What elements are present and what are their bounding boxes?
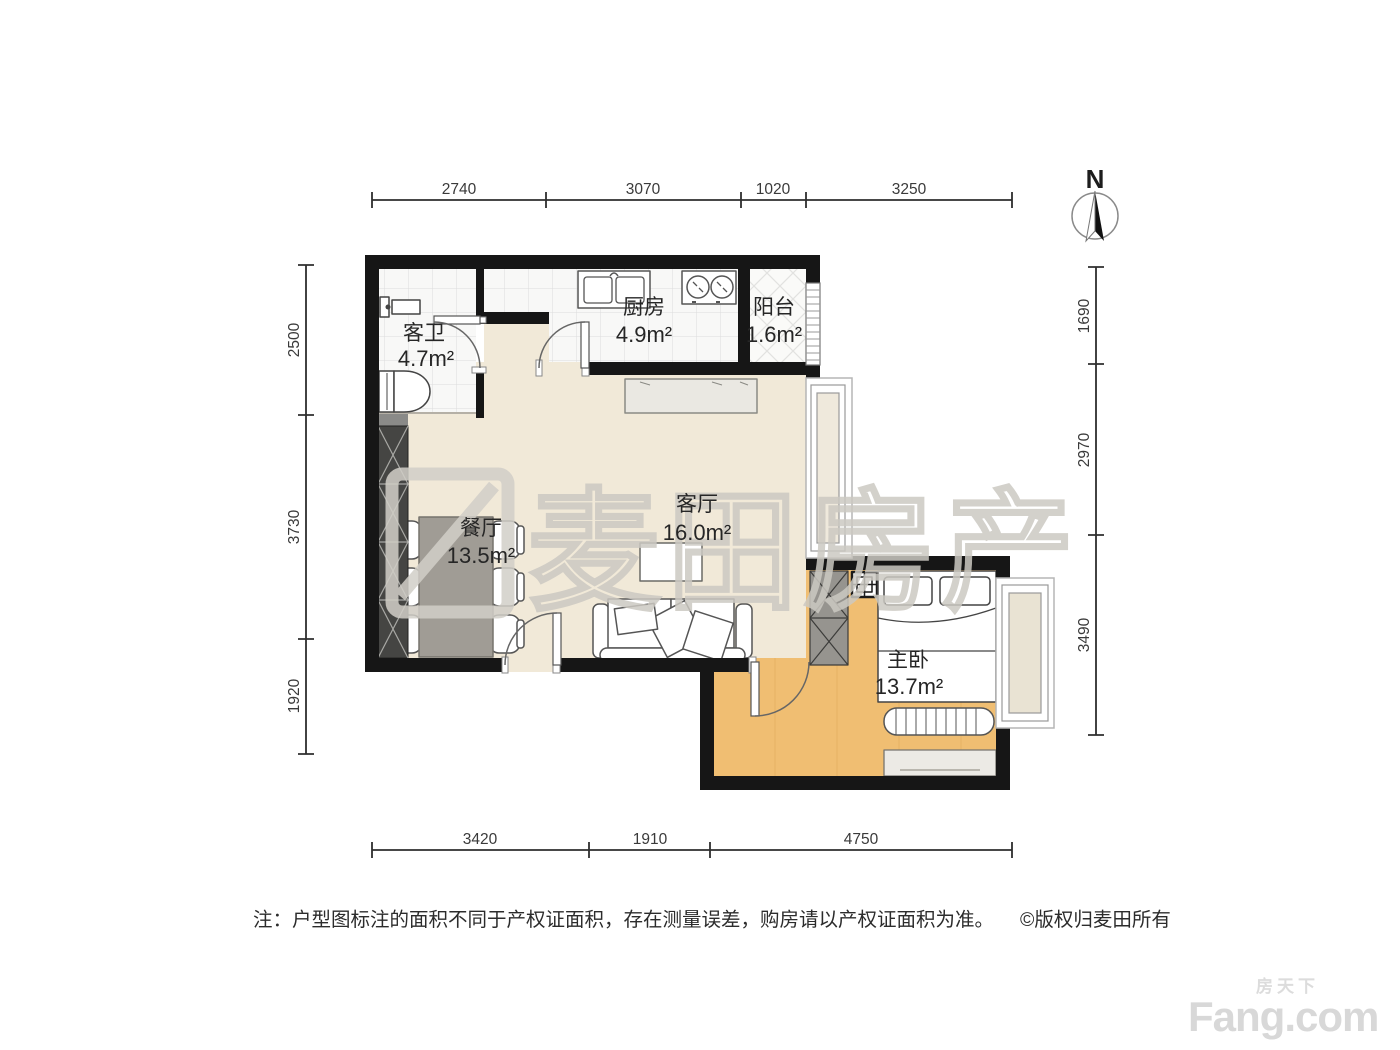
balcony-window (806, 283, 820, 365)
svg-text:1920: 1920 (286, 678, 303, 713)
compass-icon: N (1072, 164, 1118, 241)
bed-bench (884, 708, 994, 735)
footer-note: 注：户型图标注的面积不同于产权证面积，存在测量误差，购房请以产权证面积为准。©版… (253, 903, 1171, 932)
sideboard (625, 379, 757, 413)
svg-text:3250: 3250 (892, 181, 927, 198)
wall-left (365, 255, 379, 672)
svg-text:餐厅: 餐厅 (460, 517, 502, 540)
wall-bathroom-right-lower (476, 368, 484, 418)
svg-text:13.7m²: 13.7m² (875, 674, 943, 699)
dresser (884, 750, 996, 776)
wall-right-upper (806, 255, 820, 283)
wall-balcony-left (738, 268, 750, 362)
svg-text:4.7m²: 4.7m² (398, 346, 454, 371)
svg-text:厨房: 厨房 (623, 296, 665, 319)
svg-text:1690: 1690 (1076, 298, 1093, 333)
svg-text:1910: 1910 (633, 831, 668, 848)
floor-plan-page: { "plan": { "watermark": "麦田房产", "compas… (0, 0, 1400, 1050)
floor-plan: 麦田房产 客卫 4.7m² 厨房 4.9m² 阳台 1.6m² 餐厅 13.5m… (0, 0, 1400, 1050)
dimension-bottom: 3420 1910 4750 (372, 831, 1012, 858)
svg-text:阳台: 阳台 (753, 296, 795, 319)
svg-text:13.5m²: 13.5m² (447, 543, 515, 568)
svg-text:4750: 4750 (844, 831, 879, 848)
svg-text:3420: 3420 (463, 831, 498, 848)
wall-hallway-top (476, 312, 549, 324)
fang-logo-en: Fang.com (1188, 997, 1398, 1037)
compass-needle-dark (1095, 191, 1104, 241)
svg-text:客厅: 客厅 (676, 493, 718, 516)
bathroom-sink-icon (380, 297, 420, 317)
svg-text:客卫: 客卫 (403, 322, 445, 345)
disclaimer-text: 注：户型图标注的面积不同于产权证面积，存在测量误差，购房请以产权证面积为准。 (253, 909, 994, 931)
svg-text:16.0m²: 16.0m² (663, 520, 731, 545)
wall-top (365, 255, 820, 269)
wall-bottom-left (365, 658, 505, 672)
wall-kitchen-bottom (585, 362, 806, 375)
room-label-kitchen: 厨房 4.9m² (616, 296, 672, 347)
copyright-text: ©版权归麦田所有 (1020, 909, 1171, 931)
fang-logo: 房天下 Fang.com (1188, 972, 1398, 1037)
compass-needle-light (1086, 191, 1095, 241)
dimension-top: 2740 3070 1020 3250 (372, 181, 1012, 208)
wall-bedroom-bottom (700, 776, 1010, 790)
dimension-right: 1690 2970 3490 (1076, 267, 1104, 735)
svg-text:2500: 2500 (286, 322, 303, 357)
toilet-icon (379, 371, 430, 412)
stove-icon (682, 271, 736, 304)
svg-text:3730: 3730 (286, 509, 303, 544)
room-label-balcony: 阳台 1.6m² (746, 296, 802, 347)
compass-label: N (1086, 164, 1105, 194)
svg-text:3070: 3070 (626, 181, 661, 198)
dimension-left: 2500 3730 1920 (286, 265, 314, 754)
svg-text:2740: 2740 (442, 181, 477, 198)
svg-text:主卧: 主卧 (887, 649, 929, 672)
svg-text:2970: 2970 (1076, 432, 1093, 467)
svg-text:4.9m²: 4.9m² (616, 322, 672, 347)
wall-bottom-mid (557, 658, 752, 672)
svg-text:1.6m²: 1.6m² (746, 322, 802, 347)
wall-bedroom-left (700, 658, 714, 790)
watermark-text: 麦田房产 (528, 479, 1080, 626)
svg-text:3490: 3490 (1076, 617, 1093, 652)
svg-text:1020: 1020 (756, 181, 791, 198)
